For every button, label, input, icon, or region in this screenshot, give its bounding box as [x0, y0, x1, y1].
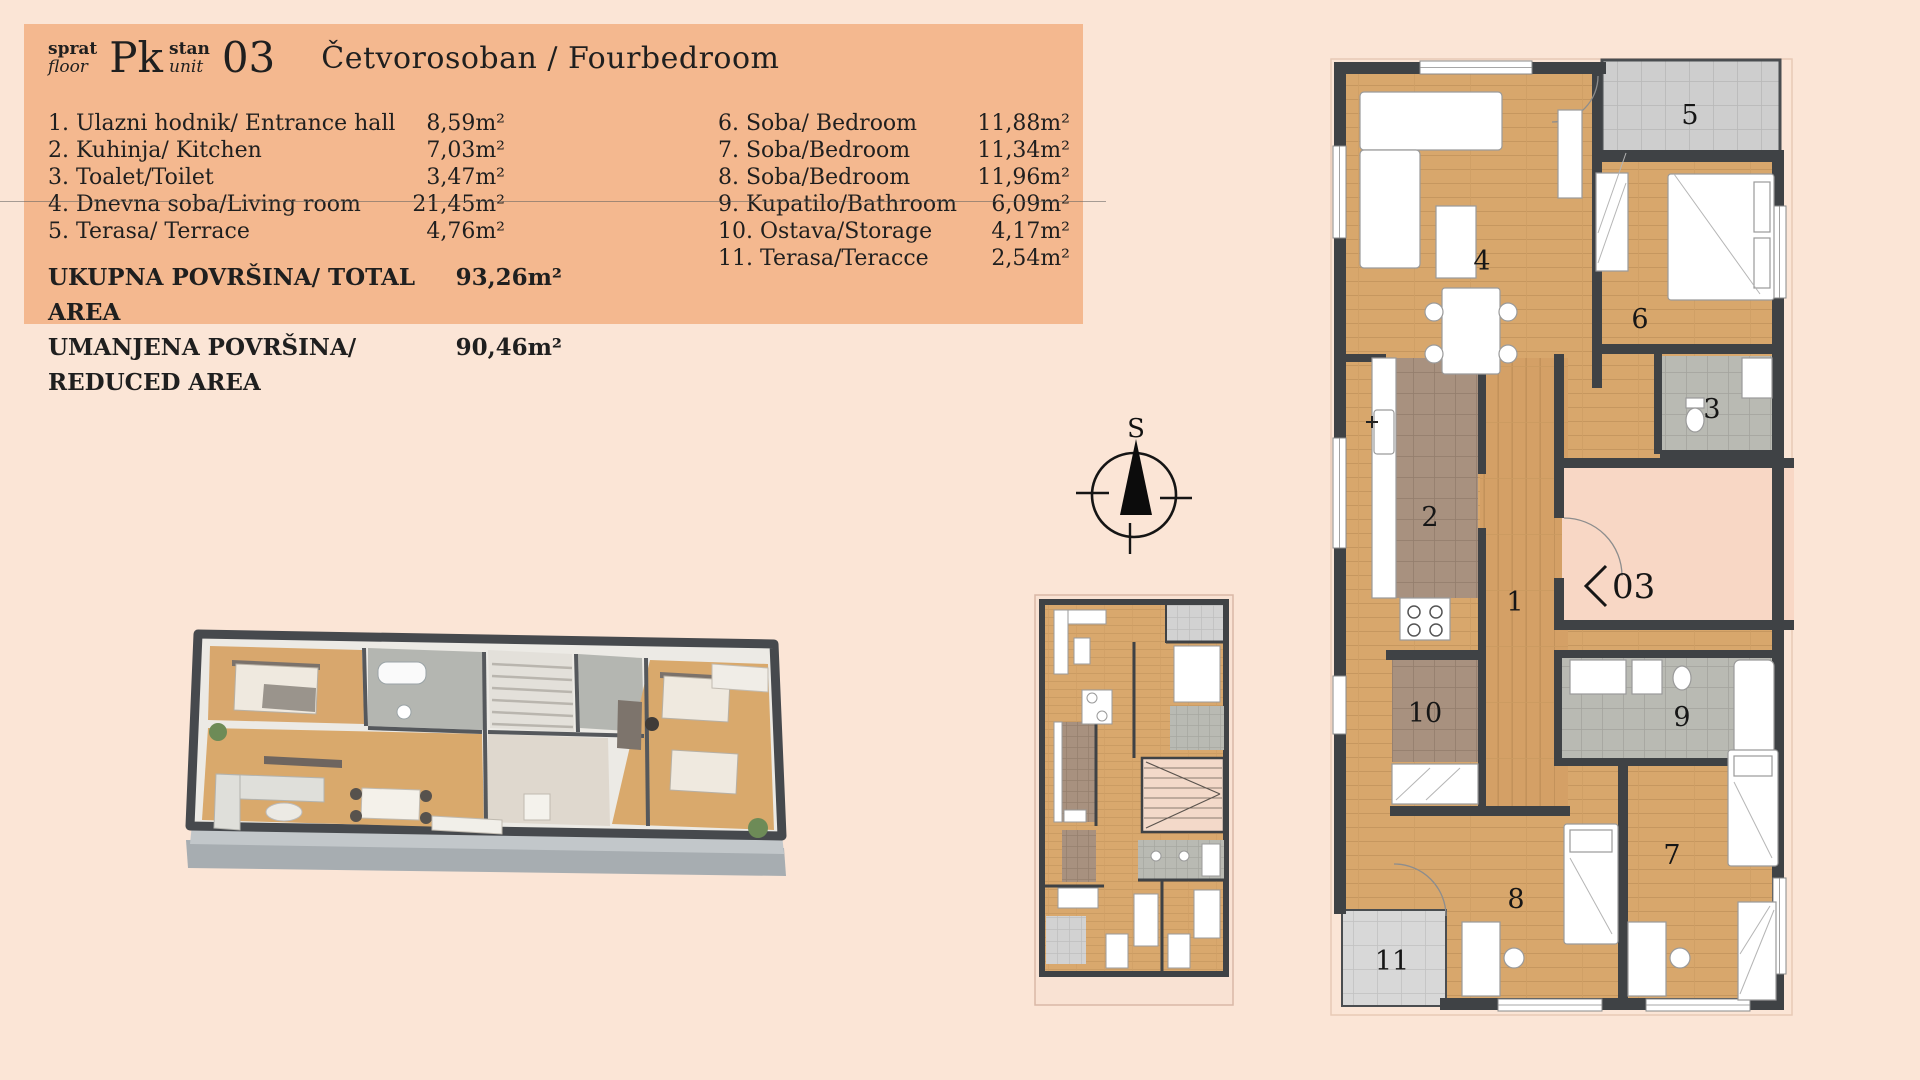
room-number-10: 10	[1408, 698, 1442, 729]
room-number-7: 7	[1663, 840, 1680, 871]
floor-label-sr: sprat	[48, 40, 97, 58]
kitchen-counter	[1372, 358, 1396, 598]
total-value: 93,26m²	[456, 260, 562, 330]
bathtub	[1734, 660, 1774, 754]
floorplan-sheet: sprat floor Pk stan unit 03 Četvorosoban…	[0, 0, 1920, 1080]
room-number-2: 2	[1421, 502, 1438, 533]
iso-bed-3	[670, 750, 738, 794]
room-row: 4. Dnevna soba/Living room21,45m²	[48, 191, 505, 218]
room-number-1: 1	[1506, 587, 1523, 618]
stove	[1400, 598, 1450, 640]
closet	[1392, 764, 1478, 804]
room-name: 5. Terasa/ Terrace	[48, 218, 250, 245]
room-row: 1. Ulazni hodnik/ Entrance hall8,59m²	[48, 110, 505, 137]
room-name: 2. Kuhinja/ Kitchen	[48, 137, 262, 164]
room-area: 11,88m²	[977, 110, 1070, 137]
room-area: 8,59m²	[426, 110, 505, 137]
room-name: 4. Dnevna soba/Living room	[48, 191, 361, 218]
room-kitchen	[1396, 358, 1478, 598]
coffee-table	[1436, 206, 1476, 278]
iso-dining-table	[361, 788, 420, 820]
room-number-3: 3	[1703, 394, 1720, 425]
room-number-5: 5	[1681, 100, 1698, 131]
room-name: 3. Toalet/Toilet	[48, 164, 214, 191]
room-area: 21,45m²	[412, 191, 505, 218]
apartment-type-title: Četvorosoban / Fourbedroom	[321, 41, 779, 76]
room-number-4: 4	[1473, 246, 1490, 277]
iso-toilet	[397, 705, 411, 719]
toilet-bowl	[1686, 408, 1704, 432]
unit-label-sr: stan	[169, 40, 210, 58]
room-row: 5. Terasa/ Terrace4,76m²	[48, 218, 505, 245]
room-list-right: 6. Soba/ Bedroom11,88m² 7. Soba/Bedroom1…	[718, 110, 1070, 272]
desk-8	[1462, 922, 1500, 996]
room-area: 7,03m²	[426, 137, 505, 164]
iso-render-3d	[172, 580, 812, 886]
compass-needle	[1120, 439, 1152, 515]
total-value: 90,46m²	[456, 330, 562, 400]
total-label: UKUPNA POVRŠINA/ TOTAL AREA	[48, 260, 456, 330]
room-area: 6,09m²	[991, 191, 1070, 218]
washing-machine	[1632, 660, 1662, 694]
room-row: 7. Soba/Bedroom11,34m²	[718, 137, 1070, 164]
info-panel: sprat floor Pk stan unit 03 Četvorosoban…	[24, 24, 1083, 324]
room-number-11: 11	[1375, 946, 1409, 977]
vanity	[1570, 660, 1626, 694]
unit-label-en: unit	[169, 58, 210, 76]
iso-desk	[617, 700, 642, 750]
large-floorplan: 1 2 3 4 5 6 7 8 9 10 11 03	[1330, 58, 1794, 1018]
room-name: 9. Kupatilo/Bathroom	[718, 191, 957, 218]
tv-board	[1558, 110, 1582, 198]
title-row: sprat floor Pk stan unit 03 Četvorosoban…	[48, 36, 779, 80]
small-plan-stairs	[1142, 758, 1224, 832]
floor-label: sprat floor	[48, 40, 97, 76]
iso-bathtub	[378, 662, 426, 684]
room-name: 11. Terasa/Teracce	[718, 245, 929, 272]
compass-icon: S	[1076, 413, 1206, 565]
room-row: 10. Ostava/Storage4,17m²	[718, 218, 1070, 245]
kitchen-sink	[1374, 410, 1394, 454]
room-list-left: 1. Ulazni hodnik/ Entrance hall8,59m² 2.…	[48, 110, 505, 245]
dining-table	[1442, 288, 1500, 374]
room-row: 2. Kuhinja/ Kitchen7,03m²	[48, 137, 505, 164]
room-row: 8. Soba/Bedroom11,96m²	[718, 164, 1070, 191]
room-number-9: 9	[1673, 702, 1690, 733]
totals: UKUPNA POVRŠINA/ TOTAL AREA93,26m² UMANJ…	[48, 260, 562, 400]
room-row: 11. Terasa/Teracce2,54m²	[718, 245, 1070, 272]
divider-line	[0, 201, 1106, 202]
room-name: 1. Ulazni hodnik/ Entrance hall	[48, 110, 395, 137]
room-area: 4,76m²	[426, 218, 505, 245]
room-area: 4,17m²	[991, 218, 1070, 245]
room-number-6: 6	[1631, 304, 1648, 335]
floor-value: Pk	[109, 36, 163, 80]
unit-value: 03	[222, 36, 275, 80]
room-area: 2,54m²	[991, 245, 1070, 272]
iso-plant	[209, 723, 227, 741]
sofa	[1360, 92, 1502, 150]
room-name: 7. Soba/Bedroom	[718, 137, 910, 164]
room-area: 3,47m²	[426, 164, 505, 191]
floor-label-en: floor	[48, 58, 97, 76]
iso-wardrobe	[712, 664, 768, 692]
total-label: UMANJENA POVRŠINA/ REDUCED AREA	[48, 330, 456, 400]
room-area: 11,96m²	[977, 164, 1070, 191]
room-number-8: 8	[1507, 884, 1524, 915]
room-area: 11,34m²	[977, 137, 1070, 164]
room-name: 6. Soba/ Bedroom	[718, 110, 917, 137]
iso-coffee-table	[266, 803, 302, 821]
room-row: 9. Kupatilo/Bathroom6,09m²	[718, 191, 1070, 218]
desk-7	[1628, 922, 1666, 996]
room-row: 6. Soba/ Bedroom11,88m²	[718, 110, 1070, 137]
room-name: 10. Ostava/Storage	[718, 218, 932, 245]
entrance-unit-number: 03	[1612, 567, 1655, 607]
unit-label: stan unit	[169, 40, 210, 76]
room-name: 8. Soba/Bedroom	[718, 164, 910, 191]
small-floorplan	[1034, 594, 1234, 1008]
total-area-row: UKUPNA POVRŠINA/ TOTAL AREA93,26m²	[48, 260, 562, 330]
reduced-area-row: UMANJENA POVRŠINA/ REDUCED AREA90,46m²	[48, 330, 562, 400]
iso-plant-2	[748, 818, 768, 838]
room-row: 3. Toalet/Toilet3,47m²	[48, 164, 505, 191]
